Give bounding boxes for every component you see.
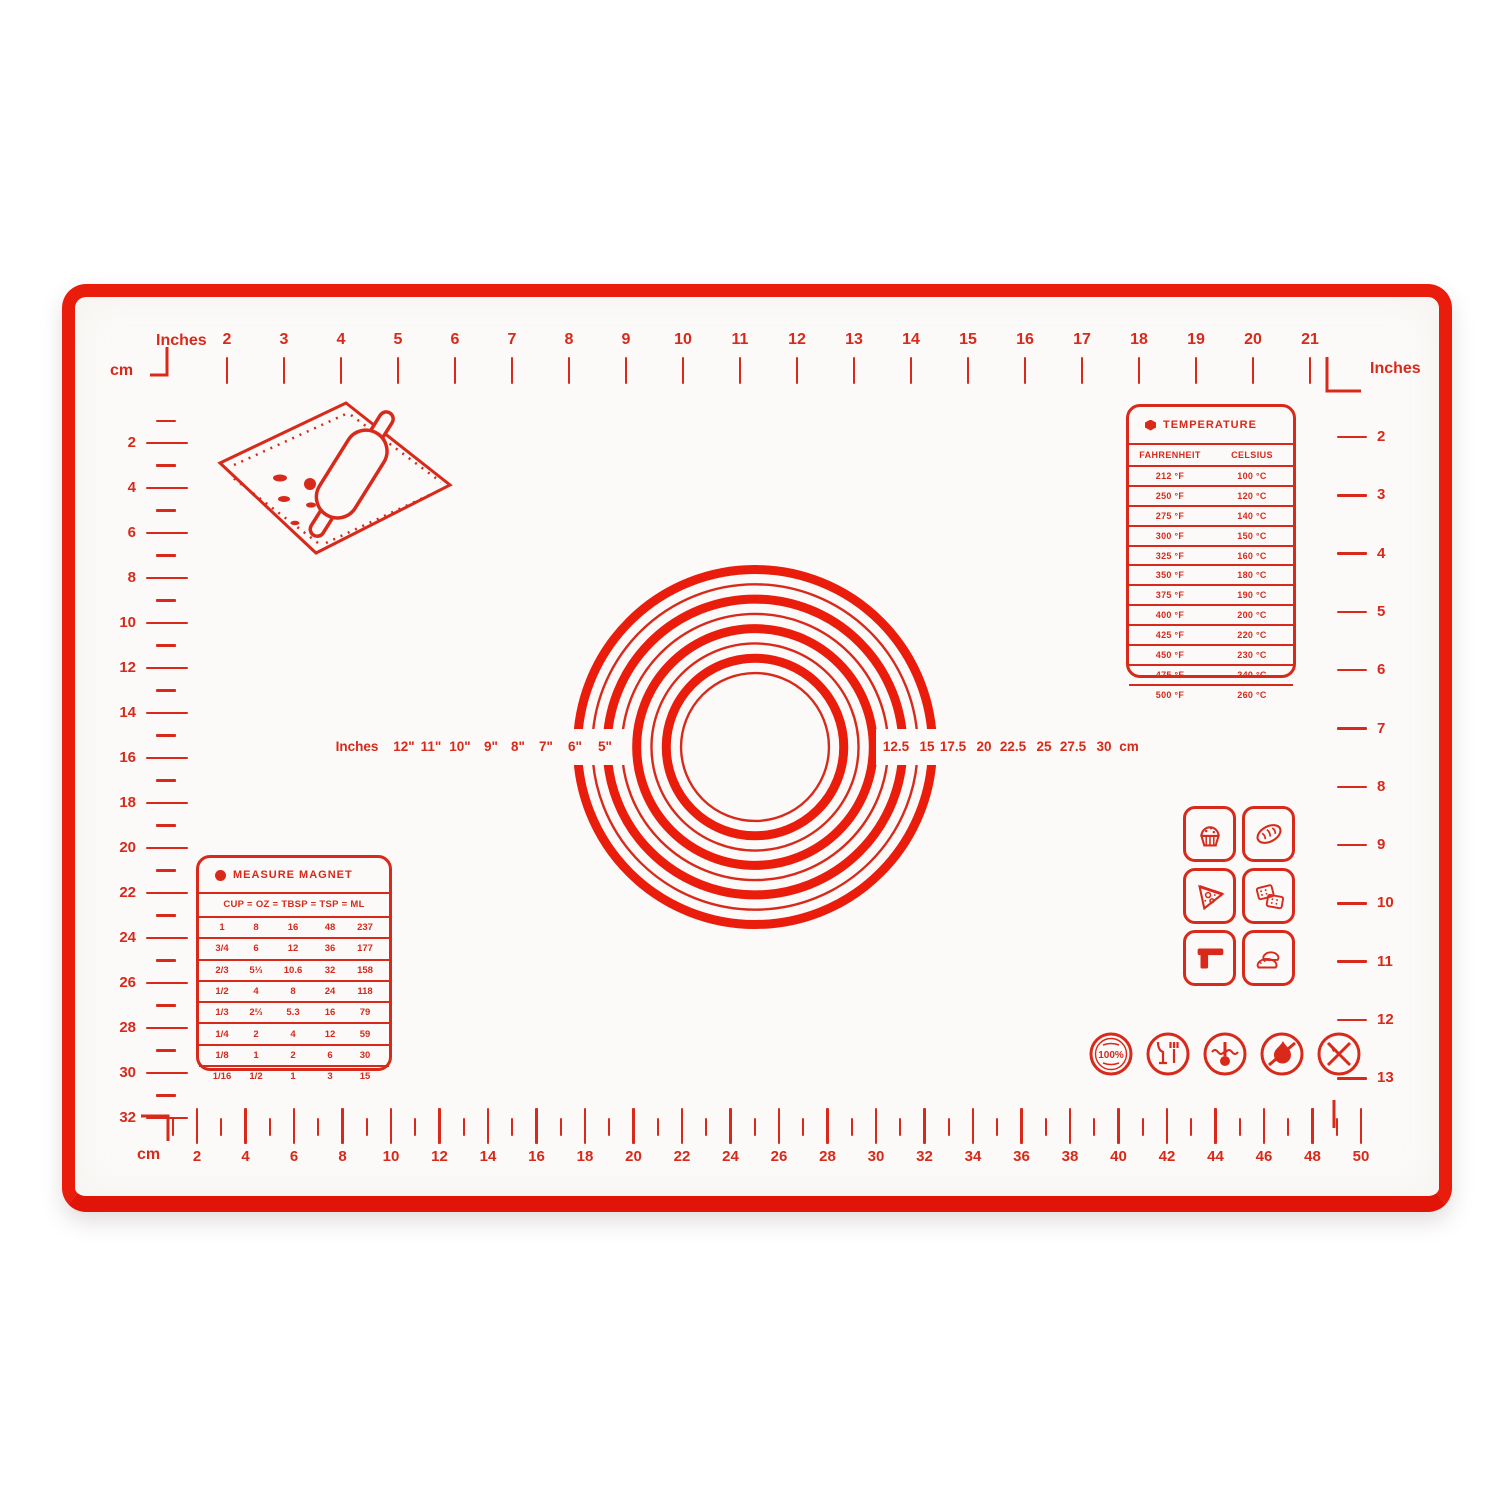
bottom-ruler-tick bbox=[1020, 1108, 1023, 1144]
top-ruler-tick bbox=[1252, 357, 1254, 384]
left-ruler-tick bbox=[146, 622, 188, 625]
circle-inch-label: 8" bbox=[511, 739, 525, 754]
temperature-row: 475 °F240 °C bbox=[1129, 666, 1293, 686]
temperature-value: 300 °F bbox=[1129, 531, 1211, 541]
bottom-ruler-minor-tick bbox=[511, 1118, 513, 1136]
top-ruler-tick bbox=[910, 357, 912, 384]
measure-magnet-panel: MEASURE MAGNET CUP = OZ = TBSP = TSP = M… bbox=[196, 855, 392, 1071]
measure-value: 30 bbox=[346, 1050, 384, 1061]
measure-value: 118 bbox=[346, 986, 384, 997]
bottom-ruler-number: 44 bbox=[1207, 1148, 1224, 1165]
left-ruler-number: 20 bbox=[106, 839, 136, 856]
top-ruler-number: 5 bbox=[394, 331, 403, 349]
left-ruler-number: 32 bbox=[106, 1109, 136, 1126]
left-ruler-tick bbox=[146, 757, 188, 760]
temperature-value: 140 °C bbox=[1211, 511, 1293, 521]
left-ruler-minor-tick bbox=[156, 1094, 176, 1096]
circle-cm-label: 15 bbox=[919, 739, 934, 754]
temperature-row: 400 °F200 °C bbox=[1129, 606, 1293, 626]
bottom-ruler-number: 18 bbox=[577, 1148, 594, 1165]
top-ruler-tick bbox=[454, 357, 456, 384]
left-ruler-minor-tick bbox=[156, 779, 176, 781]
temperature-value: 250 °F bbox=[1129, 491, 1211, 501]
measure-value: 3/4 bbox=[204, 943, 240, 954]
left-ruler-tick bbox=[146, 1117, 188, 1120]
left-ruler-minor-tick bbox=[156, 824, 176, 826]
top-ruler-number: 2 bbox=[223, 331, 232, 349]
bottom-ruler-tick bbox=[875, 1108, 878, 1144]
measure-value: 1/16 bbox=[204, 1071, 240, 1082]
right-ruler-number: 6 bbox=[1377, 661, 1385, 678]
left-ruler-minor-tick bbox=[156, 959, 176, 961]
dough-scraper-icon bbox=[1183, 930, 1236, 986]
left-ruler-number: 30 bbox=[106, 1064, 136, 1081]
bottom-ruler-minor-tick bbox=[705, 1118, 707, 1136]
circle-cm-label: 30 bbox=[1096, 739, 1111, 754]
left-ruler-number: 2 bbox=[106, 434, 136, 451]
bottom-ruler-minor-tick bbox=[802, 1118, 804, 1136]
temperature-value: 212 °F bbox=[1129, 471, 1211, 481]
measure-value: 6 bbox=[314, 1050, 346, 1061]
bottom-ruler-tick bbox=[729, 1108, 732, 1144]
bottom-ruler-number: 48 bbox=[1304, 1148, 1321, 1165]
temperature-value: 120 °C bbox=[1211, 491, 1293, 501]
left-ruler-tick bbox=[146, 712, 188, 715]
left-ruler-minor-tick bbox=[156, 644, 176, 646]
bottom-ruler-number: 34 bbox=[965, 1148, 982, 1165]
top-ruler-number: 13 bbox=[845, 331, 863, 349]
temperature-row: 450 °F230 °C bbox=[1129, 646, 1293, 666]
food-icon-grid bbox=[1183, 806, 1295, 986]
measure-value: 177 bbox=[346, 943, 384, 954]
top-ruler-number: 17 bbox=[1073, 331, 1091, 349]
top-ruler-number: 20 bbox=[1244, 331, 1262, 349]
circle-labels-cm-unit: cm bbox=[1119, 739, 1139, 754]
left-ruler-tick bbox=[146, 982, 188, 985]
bottom-ruler-number: 46 bbox=[1256, 1148, 1273, 1165]
measure-value: 237 bbox=[346, 922, 384, 933]
measure-value: 12 bbox=[272, 943, 314, 954]
left-ruler-tick bbox=[146, 1027, 188, 1030]
right-ruler-number: 2 bbox=[1377, 428, 1385, 445]
temperature-value: 375 °F bbox=[1129, 590, 1211, 600]
right-ruler-tick bbox=[1337, 727, 1367, 730]
temperature-value: 240 °C bbox=[1211, 670, 1293, 680]
top-ruler-tick bbox=[568, 357, 570, 384]
circle-inch-label: 7" bbox=[539, 739, 553, 754]
top-ruler-tick bbox=[340, 357, 342, 384]
bottom-ruler-minor-tick bbox=[366, 1118, 368, 1136]
bottom-ruler-minor-tick bbox=[560, 1118, 562, 1136]
bottom-ruler-tick bbox=[535, 1108, 538, 1144]
temperature-value: 275 °F bbox=[1129, 511, 1211, 521]
bottom-ruler-tick bbox=[1263, 1108, 1266, 1144]
bottom-ruler-tick bbox=[826, 1108, 829, 1144]
bottom-ruler-minor-tick bbox=[1093, 1118, 1095, 1136]
bottom-ruler-minor-tick bbox=[1045, 1118, 1047, 1136]
bottom-ruler-tick bbox=[196, 1108, 199, 1144]
bottom-ruler-tick bbox=[341, 1108, 344, 1144]
top-ruler-number: 15 bbox=[959, 331, 977, 349]
left-ruler-unit-label-top: cm bbox=[110, 362, 133, 380]
bottom-ruler-minor-tick bbox=[996, 1118, 998, 1136]
left-ruler-tick bbox=[146, 847, 188, 850]
measure-value: 16 bbox=[314, 1007, 346, 1018]
measure-value: 1 bbox=[272, 1071, 314, 1082]
right-ruler-tick bbox=[1337, 1019, 1367, 1022]
bottom-ruler-unit-label: cm bbox=[137, 1146, 160, 1164]
temperature-value: 500 °F bbox=[1129, 690, 1211, 700]
bottom-ruler-number: 36 bbox=[1013, 1148, 1030, 1165]
left-ruler-tick bbox=[146, 487, 188, 490]
left-ruler-tick bbox=[146, 577, 188, 580]
top-ruler-tick bbox=[625, 357, 627, 384]
temperature-row: 375 °F190 °C bbox=[1129, 586, 1293, 606]
measure-value: 1/2 bbox=[240, 1071, 272, 1082]
bottom-ruler-number: 10 bbox=[383, 1148, 400, 1165]
circle-cm-label: 25 bbox=[1036, 739, 1051, 754]
measure-value: 8 bbox=[240, 922, 272, 933]
left-ruler-number: 16 bbox=[106, 749, 136, 766]
top-ruler-number: 3 bbox=[280, 331, 289, 349]
right-ruler-tick bbox=[1337, 436, 1367, 439]
left-ruler-number: 22 bbox=[106, 884, 136, 901]
pizza-icon bbox=[1183, 868, 1236, 924]
top-ruler-tick bbox=[283, 357, 285, 384]
left-ruler-minor-tick bbox=[156, 554, 176, 556]
bread-icon bbox=[1242, 806, 1295, 862]
temperature-value: 150 °C bbox=[1211, 531, 1293, 541]
temperature-row: 425 °F220 °C bbox=[1129, 626, 1293, 646]
top-ruler-tick bbox=[1309, 357, 1311, 384]
bottom-ruler-tick bbox=[390, 1108, 393, 1144]
dumplings-icon bbox=[1242, 930, 1295, 986]
bottom-ruler-minor-tick bbox=[1239, 1118, 1241, 1136]
left-ruler-minor-tick bbox=[156, 1049, 176, 1051]
svg-text:100%: 100% bbox=[1098, 1050, 1124, 1061]
left-ruler-minor-tick bbox=[156, 689, 176, 691]
temperature-row: 500 °F260 °C bbox=[1129, 686, 1293, 704]
top-ruler-tick bbox=[682, 357, 684, 384]
top-ruler-tick bbox=[796, 357, 798, 384]
temperature-value: 190 °C bbox=[1211, 590, 1293, 600]
right-ruler-number: 8 bbox=[1377, 778, 1385, 795]
measure-value: 15 bbox=[346, 1071, 384, 1082]
left-ruler-number: 24 bbox=[106, 929, 136, 946]
right-ruler-tick bbox=[1337, 1077, 1367, 1080]
bottom-ruler-number: 22 bbox=[674, 1148, 691, 1165]
top-ruler-tick bbox=[1138, 357, 1140, 384]
top-ruler-number: 8 bbox=[565, 331, 574, 349]
top-ruler-number: 16 bbox=[1016, 331, 1034, 349]
measure-value: 5.3 bbox=[272, 1007, 314, 1018]
bottom-ruler-tick bbox=[438, 1108, 441, 1144]
circle-labels-inches-unit: Inches bbox=[336, 739, 379, 754]
left-ruler-tick bbox=[146, 532, 188, 535]
bottom-ruler-number: 8 bbox=[338, 1148, 346, 1165]
no-knife-badge bbox=[1316, 1031, 1362, 1077]
bottom-ruler-number: 38 bbox=[1062, 1148, 1079, 1165]
temperature-chart-panel: TEMPERATURE FAHRENHEIT CELSIUS 212 °F100… bbox=[1126, 404, 1296, 678]
measure-value: 5⅓ bbox=[240, 965, 272, 976]
bottom-ruler-number: 16 bbox=[528, 1148, 545, 1165]
bottom-ruler-tick bbox=[584, 1108, 587, 1144]
bottom-ruler-tick bbox=[1311, 1108, 1314, 1144]
bottom-ruler-number: 42 bbox=[1159, 1148, 1176, 1165]
measure-value: 48 bbox=[314, 922, 346, 933]
left-ruler-tick bbox=[146, 667, 188, 670]
top-ruler-number: 12 bbox=[788, 331, 806, 349]
top-ruler-tick bbox=[397, 357, 399, 384]
top-ruler-tick bbox=[739, 357, 741, 384]
measure-value: 2 bbox=[272, 1050, 314, 1061]
top-ruler-number: 9 bbox=[622, 331, 631, 349]
bottom-ruler-minor-tick bbox=[1142, 1118, 1144, 1136]
temperature-value: 100 °C bbox=[1211, 471, 1293, 481]
right-ruler-number: 3 bbox=[1377, 486, 1385, 503]
bottom-ruler-minor-tick bbox=[657, 1118, 659, 1136]
bottom-ruler-number: 28 bbox=[819, 1148, 836, 1165]
measure-value: 1 bbox=[240, 1050, 272, 1061]
top-ruler-number: 10 bbox=[674, 331, 692, 349]
bottom-ruler-number: 26 bbox=[771, 1148, 788, 1165]
bottom-ruler-tick bbox=[293, 1108, 296, 1144]
pastry-mat-product-photo: Inches cm Inches cm cm 23456789101112131… bbox=[0, 0, 1500, 1500]
right-ruler-number: 5 bbox=[1377, 603, 1385, 620]
circle-inch-label: 5" bbox=[598, 739, 612, 754]
measure-value: 1/8 bbox=[204, 1050, 240, 1061]
no-open-flame-badge bbox=[1259, 1031, 1305, 1077]
circle-cm-label: 22.5 bbox=[1000, 739, 1026, 754]
bottom-ruler-minor-tick bbox=[414, 1118, 416, 1136]
circle-bullet-icon bbox=[215, 870, 226, 881]
bottom-ruler-minor-tick bbox=[172, 1118, 174, 1136]
measure-value: 158 bbox=[346, 965, 384, 976]
measure-value: 59 bbox=[346, 1029, 384, 1040]
bottom-ruler-number: 40 bbox=[1110, 1148, 1127, 1165]
bottom-ruler-number: 30 bbox=[868, 1148, 885, 1165]
bottom-ruler-tick bbox=[1360, 1108, 1363, 1144]
bottom-ruler-minor-tick bbox=[851, 1118, 853, 1136]
left-ruler-number: 8 bbox=[106, 569, 136, 586]
bottom-ruler-tick bbox=[487, 1108, 490, 1144]
right-ruler-number: 11 bbox=[1377, 953, 1393, 970]
bottom-ruler-tick bbox=[1214, 1108, 1217, 1144]
left-ruler-number: 10 bbox=[106, 614, 136, 631]
measure-value: 4 bbox=[272, 1029, 314, 1040]
top-ruler-tick bbox=[511, 357, 513, 384]
top-ruler-number: 4 bbox=[337, 331, 346, 349]
top-ruler-number: 19 bbox=[1187, 331, 1205, 349]
temperature-value: 400 °F bbox=[1129, 610, 1211, 620]
temperature-value: 160 °C bbox=[1211, 551, 1293, 561]
circle-inch-label: 6" bbox=[568, 739, 582, 754]
right-ruler-number: 7 bbox=[1377, 720, 1385, 737]
measure-row: 181648237 bbox=[199, 918, 389, 939]
left-ruler-tick bbox=[146, 802, 188, 805]
cupcake-icon bbox=[1183, 806, 1236, 862]
top-ruler-number: 7 bbox=[508, 331, 517, 349]
right-ruler-tick bbox=[1337, 902, 1367, 905]
rolling-pin-illustration bbox=[198, 385, 468, 565]
bottom-ruler-tick bbox=[632, 1108, 635, 1144]
measure-value: 24 bbox=[314, 986, 346, 997]
measure-value: 4 bbox=[240, 986, 272, 997]
bottom-ruler-tick bbox=[972, 1108, 975, 1144]
measure-value: 2⅔ bbox=[240, 1007, 272, 1018]
left-ruler-number: 6 bbox=[106, 524, 136, 541]
measure-value: 2/3 bbox=[204, 965, 240, 976]
bottom-ruler-number: 24 bbox=[722, 1148, 739, 1165]
left-ruler-minor-tick bbox=[156, 869, 176, 871]
left-ruler-minor-tick bbox=[156, 420, 176, 422]
100-percent-silicone-badge: 100% bbox=[1088, 1031, 1134, 1077]
hexagon-bullet-icon bbox=[1145, 420, 1156, 431]
measure-value: 8 bbox=[272, 986, 314, 997]
measure-value: 1/4 bbox=[204, 1029, 240, 1040]
temperature-row: 300 °F150 °C bbox=[1129, 527, 1293, 547]
bottom-ruler-minor-tick bbox=[220, 1118, 222, 1136]
bottom-ruler-minor-tick bbox=[1190, 1118, 1192, 1136]
bottom-ruler-number: 6 bbox=[290, 1148, 298, 1165]
left-ruler-tick bbox=[146, 892, 188, 895]
measure-row: 1/4241259 bbox=[199, 1024, 389, 1045]
rolling-pin bbox=[296, 402, 408, 546]
right-ruler-number: 13 bbox=[1377, 1069, 1394, 1086]
measure-row: 3/461236177 bbox=[199, 939, 389, 960]
right-ruler-number: 4 bbox=[1377, 545, 1385, 562]
left-ruler-number: 28 bbox=[106, 1019, 136, 1036]
left-ruler-number: 12 bbox=[106, 659, 136, 676]
bottom-ruler-number: 12 bbox=[431, 1148, 448, 1165]
left-ruler-minor-tick bbox=[156, 509, 176, 511]
temperature-title: TEMPERATURE bbox=[1163, 419, 1257, 431]
top-ruler-number: 21 bbox=[1301, 331, 1319, 349]
bottom-ruler-number: 4 bbox=[241, 1148, 249, 1165]
left-ruler-number: 14 bbox=[106, 704, 136, 721]
measure-value: 16 bbox=[272, 922, 314, 933]
top-ruler-tick bbox=[853, 357, 855, 384]
temperature-value: 350 °F bbox=[1129, 570, 1211, 580]
measure-value: 1/2 bbox=[204, 986, 240, 997]
measure-value: 79 bbox=[346, 1007, 384, 1018]
measure-magnet-title: MEASURE MAGNET bbox=[233, 869, 353, 881]
measure-value: 32 bbox=[314, 965, 346, 976]
circle-cm-label: 17.5 bbox=[940, 739, 966, 754]
crackers-icon bbox=[1242, 868, 1295, 924]
left-ruler-minor-tick bbox=[156, 734, 176, 736]
bottom-ruler-minor-tick bbox=[754, 1118, 756, 1136]
measure-value: 2 bbox=[240, 1029, 272, 1040]
right-ruler-number: 12 bbox=[1377, 1011, 1394, 1028]
bottom-ruler-tick bbox=[778, 1108, 781, 1144]
certification-badges: 100% bbox=[1088, 1031, 1362, 1077]
top-ruler-tick bbox=[967, 357, 969, 384]
right-ruler-tick bbox=[1337, 494, 1367, 497]
bottom-ruler-tick bbox=[244, 1108, 247, 1144]
temperature-col-celsius: CELSIUS bbox=[1211, 450, 1293, 460]
bottom-ruler-minor-tick bbox=[948, 1118, 950, 1136]
measure-value: 10.6 bbox=[272, 965, 314, 976]
bottom-ruler-minor-tick bbox=[1287, 1118, 1289, 1136]
left-ruler-number: 26 bbox=[106, 974, 136, 991]
top-ruler-tick bbox=[226, 357, 228, 384]
temperature-value: 220 °C bbox=[1211, 630, 1293, 640]
circle-inch-label: 12" bbox=[393, 739, 414, 754]
temperature-value: 230 °C bbox=[1211, 650, 1293, 660]
bottom-ruler-tick bbox=[1117, 1108, 1120, 1144]
left-ruler-tick bbox=[146, 937, 188, 940]
bottom-ruler-number: 2 bbox=[193, 1148, 201, 1165]
temperature-value: 200 °C bbox=[1211, 610, 1293, 620]
left-ruler-number: 18 bbox=[106, 794, 136, 811]
measure-value: 36 bbox=[314, 943, 346, 954]
circle-inch-label: 9" bbox=[484, 739, 498, 754]
measure-value: 1 bbox=[204, 922, 240, 933]
top-ruler-unit-label: Inches bbox=[156, 332, 207, 350]
temperature-row: 275 °F140 °C bbox=[1129, 507, 1293, 527]
top-ruler-number: 6 bbox=[451, 331, 460, 349]
right-ruler-number: 10 bbox=[1377, 894, 1394, 911]
top-ruler-number: 11 bbox=[732, 331, 749, 349]
circle-inch-label: 11" bbox=[421, 739, 442, 754]
bottom-ruler-number: 32 bbox=[916, 1148, 933, 1165]
bottom-ruler-minor-tick bbox=[608, 1118, 610, 1136]
circle-cm-label: 12.5 bbox=[883, 739, 909, 754]
circle-cm-label: 20 bbox=[976, 739, 991, 754]
bottom-ruler-tick bbox=[923, 1108, 926, 1144]
right-ruler-number: 9 bbox=[1377, 836, 1385, 853]
left-ruler-minor-tick bbox=[156, 914, 176, 916]
bottom-ruler-minor-tick bbox=[317, 1118, 319, 1136]
bottom-ruler-tick bbox=[1166, 1108, 1169, 1144]
temperature-row: 325 °F160 °C bbox=[1129, 547, 1293, 567]
left-ruler-tick bbox=[146, 442, 188, 445]
measure-magnet-header: CUP = OZ = TBSP = TSP = ML bbox=[199, 894, 389, 918]
bottom-ruler-minor-tick bbox=[463, 1118, 465, 1136]
circle-inch-label: 10" bbox=[449, 739, 470, 754]
heat-resistant-badge bbox=[1202, 1031, 1248, 1077]
measure-value: 12 bbox=[314, 1029, 346, 1040]
bottom-ruler-minor-tick bbox=[899, 1118, 901, 1136]
temperature-row: 212 °F100 °C bbox=[1129, 467, 1293, 487]
measure-row: 1/24824118 bbox=[199, 982, 389, 1003]
right-ruler-unit-label: Inches bbox=[1370, 360, 1421, 378]
left-ruler-number: 4 bbox=[106, 479, 136, 496]
temperature-value: 180 °C bbox=[1211, 570, 1293, 580]
temperature-value: 450 °F bbox=[1129, 650, 1211, 660]
bottom-ruler-number: 20 bbox=[625, 1148, 642, 1165]
temperature-col-fahrenheit: FAHRENHEIT bbox=[1129, 450, 1211, 460]
left-ruler-minor-tick bbox=[156, 599, 176, 601]
right-ruler-tick bbox=[1337, 960, 1367, 963]
top-ruler-number: 18 bbox=[1130, 331, 1148, 349]
temperature-value: 260 °C bbox=[1211, 690, 1293, 700]
food-safe-badge bbox=[1145, 1031, 1191, 1077]
temperature-value: 425 °F bbox=[1129, 630, 1211, 640]
right-ruler-tick bbox=[1337, 552, 1367, 555]
measure-value: 6 bbox=[240, 943, 272, 954]
bottom-ruler-tick bbox=[1069, 1108, 1072, 1144]
temperature-value: 325 °F bbox=[1129, 551, 1211, 561]
measure-value: 1/3 bbox=[204, 1007, 240, 1018]
measure-row: 1/812630 bbox=[199, 1046, 389, 1067]
bottom-ruler-number: 14 bbox=[480, 1148, 497, 1165]
right-ruler-tick bbox=[1337, 786, 1367, 789]
left-ruler-minor-tick bbox=[156, 464, 176, 466]
measure-row: 1/161/21315 bbox=[199, 1067, 389, 1086]
left-ruler-minor-tick bbox=[156, 1004, 176, 1006]
